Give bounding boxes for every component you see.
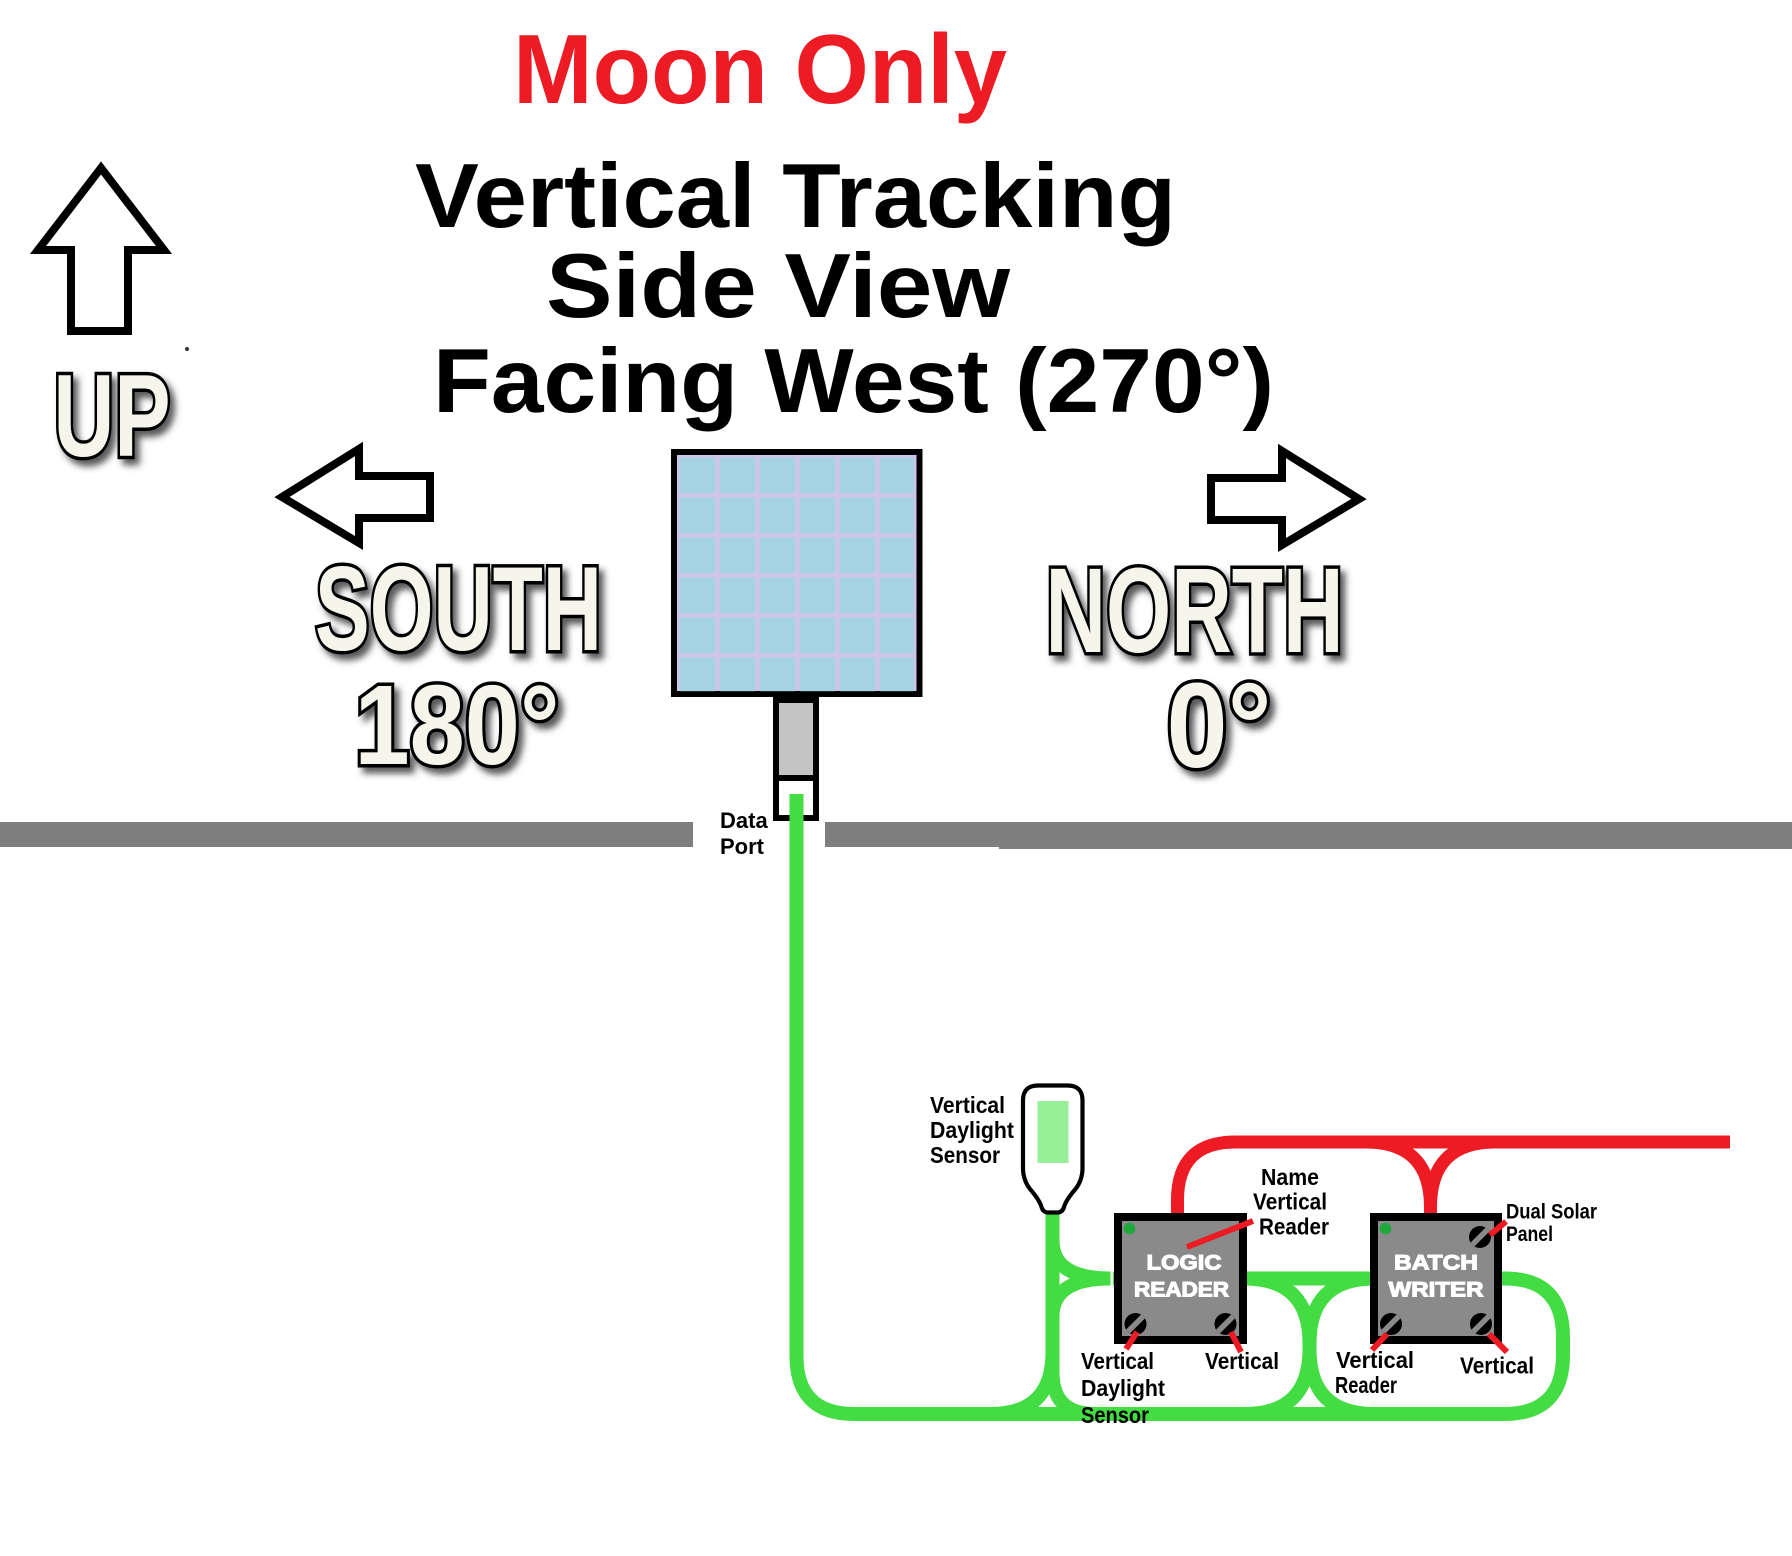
svg-text:Vertical: Vertical xyxy=(1205,1348,1279,1374)
svg-text:Vertical: Vertical xyxy=(1081,1348,1154,1374)
svg-text:Vertical: Vertical xyxy=(930,1092,1005,1118)
svg-text:Vertical: Vertical xyxy=(1253,1189,1327,1215)
svg-text:WRITER: WRITER xyxy=(1389,1279,1484,1302)
svg-text:Port: Port xyxy=(720,834,765,859)
svg-text:Reader: Reader xyxy=(1335,1372,1397,1398)
svg-text:Panel: Panel xyxy=(1506,1223,1553,1246)
svg-text:Vertical: Vertical xyxy=(1336,1347,1414,1373)
svg-text:Dual Solar: Dual Solar xyxy=(1506,1201,1597,1224)
svg-text:READER: READER xyxy=(1134,1279,1229,1302)
svg-text:Data: Data xyxy=(720,808,768,833)
svg-text:Daylight: Daylight xyxy=(930,1117,1014,1143)
svg-text:Sensor: Sensor xyxy=(930,1142,1000,1168)
svg-text:BATCH: BATCH xyxy=(1394,1252,1478,1275)
svg-text:180°: 180° xyxy=(355,662,560,788)
svg-text:UP: UP xyxy=(54,350,171,481)
svg-text:Name: Name xyxy=(1261,1164,1319,1190)
svg-text:LOGIC: LOGIC xyxy=(1147,1252,1222,1275)
svg-text:Reader: Reader xyxy=(1259,1214,1329,1240)
svg-text:Vertical: Vertical xyxy=(1460,1353,1534,1379)
svg-text:Daylight: Daylight xyxy=(1081,1375,1165,1401)
svg-text:Facing West (270°): Facing West (270°) xyxy=(433,331,1274,432)
svg-text:SOUTH: SOUTH xyxy=(315,542,602,676)
svg-text:Moon Only: Moon Only xyxy=(513,14,1007,124)
svg-text:Sensor: Sensor xyxy=(1081,1402,1149,1428)
svg-text:0°: 0° xyxy=(1167,657,1272,793)
svg-text:Vertical Tracking: Vertical Tracking xyxy=(415,146,1176,247)
svg-text:Side View: Side View xyxy=(546,236,1010,337)
